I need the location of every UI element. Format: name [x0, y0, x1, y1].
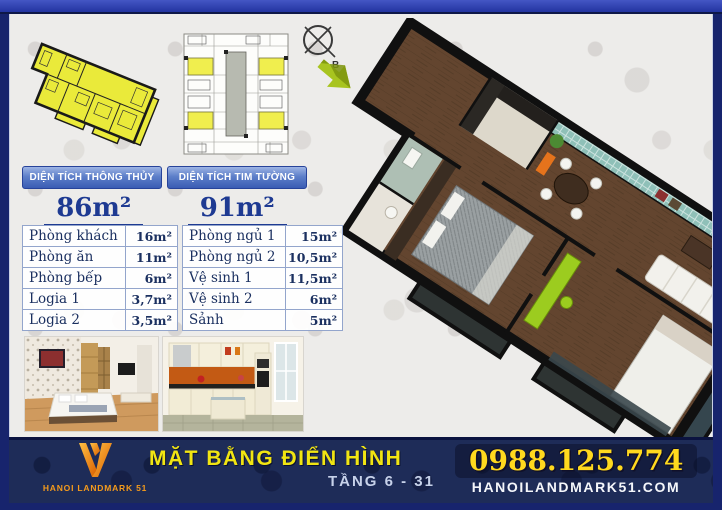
gross-area-bar: DIỆN TÍCH TIM TƯỜNG: [167, 166, 307, 189]
table-row: Phòng bếp6m²: [23, 268, 178, 289]
area-value-row: 86m² 91m²: [22, 193, 309, 226]
plan-title-block: MẶT BẰNG ĐIỂN HÌNH TẦNG 6 - 31: [149, 447, 469, 490]
room-name-cell: Phòng bếp: [23, 268, 126, 289]
area-header-row: DIỆN TÍCH THÔNG THỦY DIỆN TÍCH TIM TƯỜNG: [22, 166, 307, 189]
top-border: [0, 0, 722, 14]
website-url: HANOILANDMARK51.COM: [455, 479, 697, 495]
room-name-cell: Phòng ăn: [23, 247, 126, 268]
brand-logo: HANOI LANDMARK 51: [35, 443, 155, 493]
apartment-3d-render: [294, 18, 713, 437]
table-row: Phòng ngủ 115m²: [183, 226, 343, 247]
footer-bar: HANOI LANDMARK 51 MẶT BẰNG ĐIỂN HÌNH TẦN…: [9, 437, 713, 503]
table-row: Phòng khách16m²: [23, 226, 178, 247]
interior-photos: [24, 336, 304, 432]
table-row: Sảnh5m²: [183, 310, 343, 331]
room-name-cell: Vệ sinh 1: [183, 268, 286, 289]
room-name-cell: Vệ sinh 2: [183, 289, 286, 310]
phone-panel: 0988.125.774: [455, 444, 697, 478]
room-area-cell: 3,7m²: [126, 289, 178, 310]
table-row: Logia 23,5m²: [23, 310, 178, 331]
floorplate-diagram: [180, 24, 292, 162]
table-row: Phòng ăn11m²: [23, 247, 178, 268]
room-area-tables: Phòng khách16m² Phòng ăn11m² Phòng bếp6m…: [22, 225, 343, 331]
table-row: Vệ sinh 26m²: [183, 289, 343, 310]
brochure-page: B: [0, 0, 722, 510]
table-row: Logia 13,7m²: [23, 289, 178, 310]
room-area-cell: 16m²: [126, 226, 178, 247]
table-row: Vệ sinh 111,5m²: [183, 268, 343, 289]
room-area-cell: 10,5m²: [286, 247, 343, 268]
contact-block: 0988.125.774 HANOILANDMARK51.COM: [455, 444, 697, 495]
room-area-cell: 3,5m²: [126, 310, 178, 331]
logo-w-icon: [71, 443, 119, 477]
bedroom-photo: [24, 336, 159, 432]
room-area-table-right: Phòng ngủ 115m² Phòng ngủ 210,5m² Vệ sin…: [182, 225, 343, 331]
kitchen-photo: [162, 336, 304, 432]
room-name-cell: Logia 1: [23, 289, 126, 310]
net-area-value: 86m²: [22, 193, 166, 226]
room-area-cell: 11,5m²: [286, 268, 343, 289]
room-area-cell: 6m²: [126, 268, 178, 289]
phone-number: 0988.125.774: [469, 444, 683, 477]
content-area: B: [9, 14, 713, 437]
table-row: Phòng ngủ 210,5m²: [183, 247, 343, 268]
room-name-cell: Logia 2: [23, 310, 126, 331]
room-area-cell: 5m²: [286, 310, 343, 331]
room-name-cell: Phòng khách: [23, 226, 126, 247]
brand-name: HANOI LANDMARK 51: [35, 483, 155, 493]
gross-area-value: 91m²: [166, 193, 310, 226]
plan-title: MẶT BẰNG ĐIỂN HÌNH: [149, 447, 469, 471]
room-name-cell: Phòng ngủ 2: [183, 247, 286, 268]
unit-plan-thumbnail: [18, 18, 170, 164]
room-area-cell: 15m²: [286, 226, 343, 247]
net-area-bar: DIỆN TÍCH THÔNG THỦY: [22, 166, 162, 189]
room-name-cell: Sảnh: [183, 310, 286, 331]
floor-range: TẦNG 6 - 31: [149, 473, 469, 490]
room-name-cell: Phòng ngủ 1: [183, 226, 286, 247]
room-area-table-left: Phòng khách16m² Phòng ăn11m² Phòng bếp6m…: [22, 225, 178, 331]
room-area-cell: 6m²: [286, 289, 343, 310]
room-area-cell: 11m²: [126, 247, 178, 268]
